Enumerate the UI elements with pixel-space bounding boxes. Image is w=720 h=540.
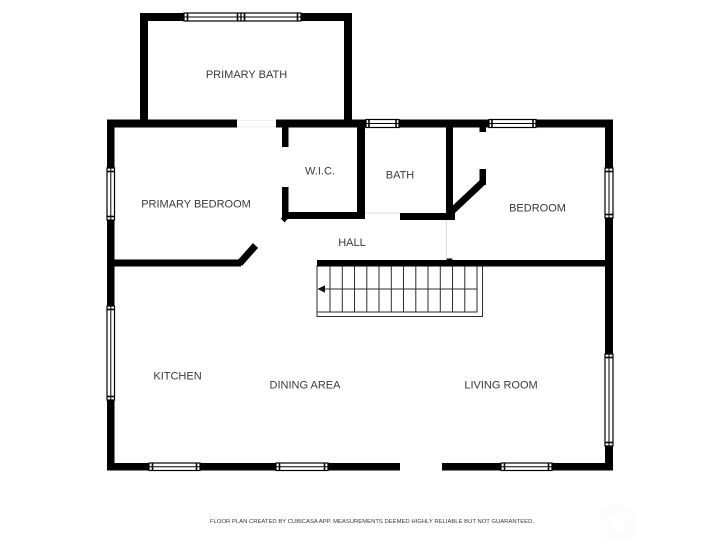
svg-text:DINING AREA: DINING AREA bbox=[270, 380, 342, 392]
svg-text:FLOOR PLAN CREATED BY CUBICASA: FLOOR PLAN CREATED BY CUBICASA APP. MEAS… bbox=[210, 519, 534, 525]
svg-text:BEDROOM: BEDROOM bbox=[509, 203, 566, 215]
svg-text:HALL: HALL bbox=[338, 237, 366, 249]
svg-text:PRIMARY BATH: PRIMARY BATH bbox=[206, 69, 287, 81]
svg-text:W.I.C.: W.I.C. bbox=[305, 165, 335, 177]
svg-text:PRIMARY BEDROOM: PRIMARY BEDROOM bbox=[141, 198, 251, 210]
svg-text:LIVING ROOM: LIVING ROOM bbox=[464, 380, 537, 392]
svg-text:KITCHEN: KITCHEN bbox=[153, 371, 201, 383]
svg-text:BATH: BATH bbox=[386, 170, 415, 182]
